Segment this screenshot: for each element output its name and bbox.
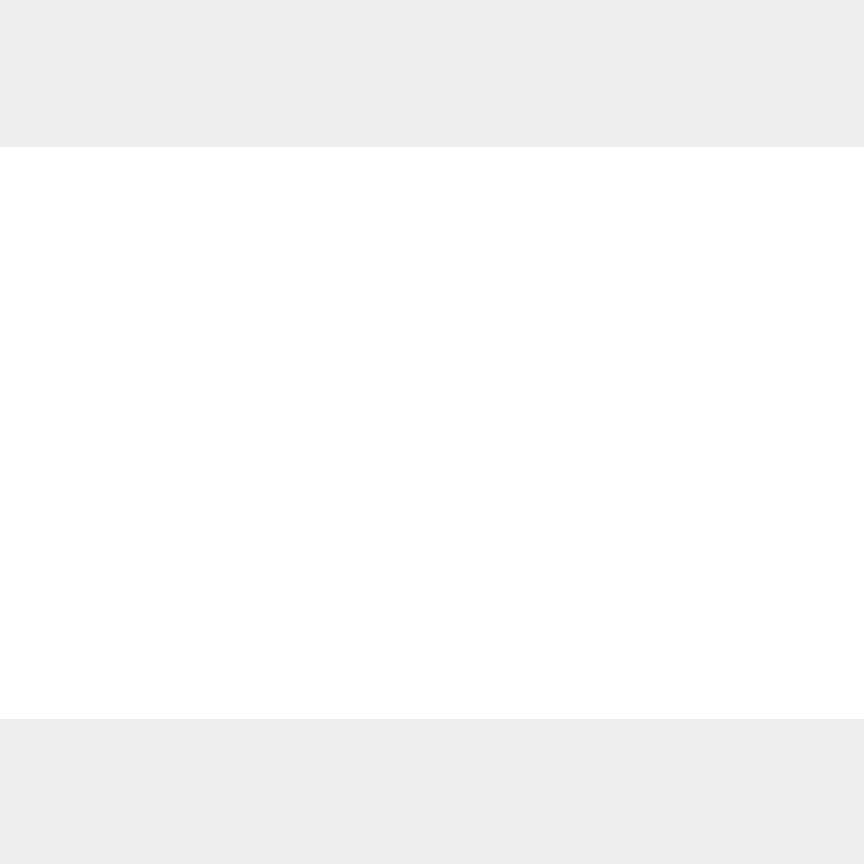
floor-plan-svg (0, 0, 864, 864)
floor-plan-canvas (0, 0, 864, 864)
background-layer (0, 0, 864, 864)
